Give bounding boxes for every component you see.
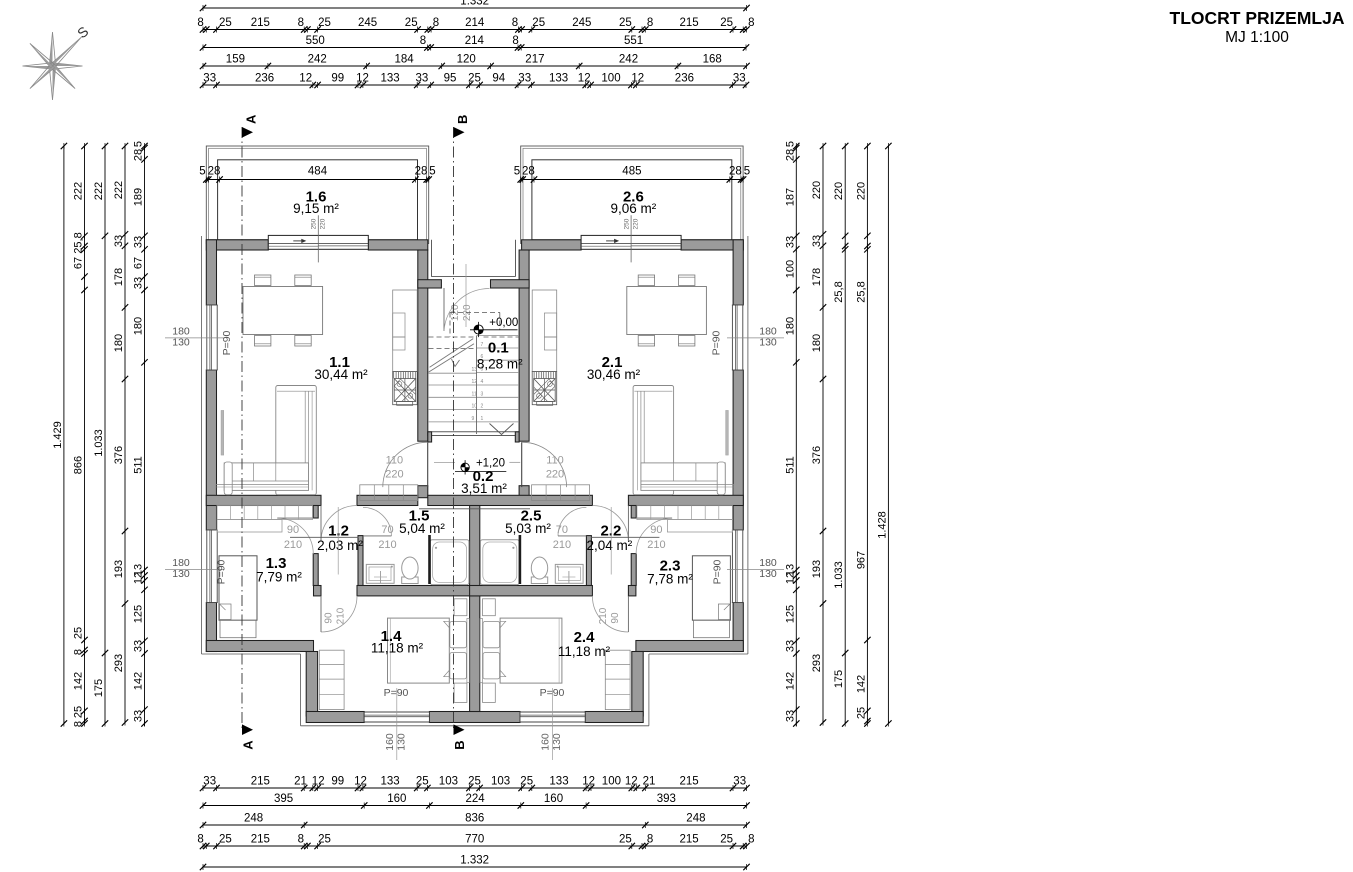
svg-text:P=90: P=90 [216, 559, 228, 584]
svg-text:25: 25 [720, 834, 733, 846]
svg-text:184: 184 [395, 54, 415, 66]
svg-text:210: 210 [553, 539, 571, 551]
svg-text:25,8: 25,8 [855, 281, 867, 302]
svg-text:70: 70 [381, 524, 393, 536]
svg-text:214: 214 [465, 35, 485, 47]
svg-text:99: 99 [331, 776, 344, 788]
svg-text:12: 12 [582, 776, 595, 788]
svg-text:100: 100 [784, 260, 796, 278]
svg-text:P=90: P=90 [710, 330, 722, 355]
svg-text:9,06 m²: 9,06 m² [611, 201, 657, 216]
svg-text:33: 33 [518, 73, 531, 85]
svg-text:160: 160 [384, 733, 396, 751]
svg-text:100: 100 [602, 776, 621, 788]
svg-text:210: 210 [336, 607, 347, 624]
svg-text:8: 8 [433, 17, 439, 29]
svg-text:8: 8 [197, 17, 203, 29]
svg-text:222: 222 [113, 181, 125, 199]
svg-text:1.429: 1.429 [52, 421, 64, 449]
svg-text:967: 967 [855, 551, 867, 569]
svg-text:175: 175 [93, 679, 105, 697]
svg-text:770: 770 [465, 834, 484, 846]
svg-text:33: 33 [203, 73, 216, 85]
svg-text:484: 484 [308, 166, 328, 178]
svg-text:293: 293 [811, 654, 823, 672]
svg-text:180: 180 [113, 334, 125, 352]
svg-text:33: 33 [416, 73, 429, 85]
svg-text:28: 28 [133, 149, 145, 161]
svg-text:12: 12 [631, 73, 644, 85]
svg-text:160: 160 [544, 793, 563, 805]
svg-text:25: 25 [318, 834, 331, 846]
svg-text:3,51 m²: 3,51 m² [461, 481, 507, 496]
svg-text:25: 25 [318, 17, 331, 29]
svg-text:2,04 m²: 2,04 m² [587, 538, 633, 553]
svg-text:7: 7 [481, 342, 484, 348]
svg-text:100: 100 [601, 73, 620, 85]
svg-text:25,8: 25,8 [73, 232, 85, 253]
svg-text:8: 8 [748, 834, 754, 846]
svg-text:95: 95 [444, 73, 457, 85]
svg-text:90: 90 [650, 524, 662, 536]
svg-text:2,03 m²: 2,03 m² [317, 538, 363, 553]
svg-text:2: 2 [481, 404, 484, 410]
svg-text:8: 8 [298, 834, 304, 846]
svg-text:33: 33 [133, 640, 145, 652]
svg-text:142: 142 [133, 672, 145, 690]
svg-text:180: 180 [784, 317, 796, 335]
svg-text:248: 248 [686, 813, 705, 825]
svg-text:8: 8 [512, 35, 518, 47]
svg-text:193: 193 [113, 560, 125, 578]
svg-text:67: 67 [133, 257, 145, 269]
svg-text:21: 21 [643, 776, 656, 788]
svg-text:103: 103 [439, 776, 458, 788]
svg-text:33: 33 [133, 710, 145, 722]
svg-text:10: 10 [472, 404, 478, 410]
svg-text:130: 130 [551, 733, 563, 751]
svg-text:25: 25 [855, 707, 867, 719]
svg-text:5: 5 [744, 166, 750, 178]
svg-text:33: 33 [133, 236, 145, 248]
svg-text:5: 5 [784, 141, 796, 147]
svg-text:8: 8 [647, 834, 653, 846]
svg-text:215: 215 [251, 776, 270, 788]
svg-text:103: 103 [491, 776, 510, 788]
svg-text:33: 33 [133, 277, 145, 289]
svg-text:12: 12 [299, 73, 312, 85]
svg-text:28: 28 [522, 166, 535, 178]
svg-text:511: 511 [133, 456, 145, 474]
svg-text:12: 12 [312, 776, 325, 788]
svg-text:TLOCRT PRIZEMLJA: TLOCRT PRIZEMLJA [1170, 8, 1345, 28]
svg-text:220: 220 [633, 218, 640, 229]
svg-text:12: 12 [356, 73, 369, 85]
svg-text:25: 25 [219, 17, 232, 29]
svg-text:210: 210 [598, 607, 609, 624]
svg-text:25: 25 [73, 627, 85, 639]
svg-text:25: 25 [219, 834, 232, 846]
svg-text:120: 120 [457, 54, 476, 66]
svg-text:8: 8 [420, 35, 426, 47]
svg-text:12: 12 [472, 379, 478, 385]
svg-text:8: 8 [197, 834, 203, 846]
svg-text:215: 215 [251, 834, 270, 846]
svg-text:125: 125 [784, 605, 796, 623]
svg-text:1.033: 1.033 [833, 561, 845, 589]
svg-text:376: 376 [811, 446, 823, 464]
svg-text:178: 178 [113, 268, 125, 286]
svg-text:99: 99 [331, 73, 344, 85]
svg-text:187: 187 [784, 188, 796, 206]
svg-text:248: 248 [244, 813, 263, 825]
svg-text:133: 133 [381, 73, 400, 85]
svg-text:293: 293 [113, 654, 125, 672]
svg-text:133: 133 [381, 776, 400, 788]
svg-text:1.428: 1.428 [876, 511, 888, 539]
svg-text:25: 25 [468, 73, 481, 85]
svg-text:245: 245 [358, 17, 377, 29]
svg-text:B: B [452, 740, 467, 749]
svg-text:33: 33 [733, 776, 746, 788]
svg-text:215: 215 [680, 17, 699, 29]
svg-text:168: 168 [703, 54, 722, 66]
svg-text:25: 25 [416, 776, 429, 788]
svg-text:175: 175 [833, 670, 845, 688]
svg-text:220: 220 [546, 469, 564, 481]
svg-text:90: 90 [610, 612, 621, 624]
svg-text:5: 5 [514, 166, 520, 178]
svg-text:0.1: 0.1 [488, 340, 509, 357]
svg-text:193: 193 [811, 560, 823, 578]
svg-text:8: 8 [298, 17, 304, 29]
svg-text:836: 836 [465, 813, 484, 825]
svg-text:11: 11 [472, 391, 477, 397]
svg-text:25: 25 [720, 17, 733, 29]
svg-text:222: 222 [93, 182, 105, 200]
svg-text:214: 214 [465, 17, 485, 29]
svg-text:5: 5 [199, 166, 205, 178]
svg-text:142: 142 [784, 672, 796, 690]
svg-text:159: 159 [226, 54, 245, 66]
svg-text:+0,00: +0,00 [489, 317, 518, 329]
svg-text:242: 242 [308, 54, 327, 66]
svg-text:25: 25 [532, 17, 545, 29]
svg-text:866: 866 [73, 456, 85, 474]
svg-text:90: 90 [324, 612, 335, 624]
svg-text:551: 551 [624, 35, 643, 47]
svg-text:25: 25 [73, 706, 85, 718]
svg-text:215: 215 [680, 776, 699, 788]
svg-text:8: 8 [647, 17, 653, 29]
svg-text:485: 485 [622, 166, 641, 178]
svg-text:8,28 m²: 8,28 m² [477, 357, 523, 372]
svg-text:511: 511 [784, 456, 796, 474]
svg-text:A: A [244, 114, 259, 124]
svg-text:30,46 m²: 30,46 m² [587, 367, 641, 382]
svg-text:30,44 m²: 30,44 m² [314, 367, 368, 382]
svg-text:1.033: 1.033 [93, 429, 105, 457]
svg-text:1.332: 1.332 [460, 855, 489, 867]
svg-text:180: 180 [811, 334, 823, 352]
svg-text:189: 189 [133, 188, 145, 206]
svg-text:33: 33 [113, 235, 125, 247]
svg-text:28: 28 [415, 166, 428, 178]
svg-text:9,15 m²: 9,15 m² [293, 201, 339, 216]
svg-text:25: 25 [405, 17, 418, 29]
svg-text:3: 3 [481, 391, 484, 397]
svg-text:8: 8 [73, 721, 85, 727]
svg-text:9: 9 [472, 416, 475, 422]
svg-text:215: 215 [251, 17, 270, 29]
svg-text:250: 250 [624, 218, 631, 229]
svg-text:220: 220 [385, 469, 403, 481]
svg-text:5: 5 [133, 141, 145, 147]
svg-text:217: 217 [525, 54, 544, 66]
svg-text:393: 393 [657, 793, 676, 805]
svg-text:A: A [241, 740, 256, 750]
svg-text:550: 550 [306, 35, 325, 47]
svg-text:94: 94 [492, 73, 505, 85]
svg-text:12: 12 [625, 776, 638, 788]
svg-text:33: 33 [784, 236, 796, 248]
svg-text:28: 28 [729, 166, 742, 178]
svg-text:110: 110 [546, 455, 564, 467]
svg-text:67: 67 [73, 257, 85, 269]
svg-text:33: 33 [784, 710, 796, 722]
svg-text:25,8: 25,8 [833, 281, 845, 302]
svg-text:25: 25 [468, 776, 481, 788]
svg-text:P=90: P=90 [712, 559, 724, 584]
svg-text:P=90: P=90 [384, 687, 409, 699]
svg-text:33: 33 [784, 640, 796, 652]
svg-text:33: 33 [733, 73, 746, 85]
svg-text:180: 180 [133, 317, 145, 335]
svg-text:224: 224 [466, 793, 486, 805]
svg-text:28: 28 [208, 166, 221, 178]
svg-text:1.332: 1.332 [460, 0, 489, 8]
svg-text:1: 1 [481, 416, 484, 422]
svg-text:5,03 m²: 5,03 m² [505, 521, 551, 536]
svg-text:220: 220 [320, 218, 327, 229]
svg-text:MJ 1:100: MJ 1:100 [1225, 29, 1289, 46]
svg-text:110: 110 [386, 455, 404, 467]
svg-text:7,79 m²: 7,79 m² [256, 569, 302, 584]
svg-text:242: 242 [619, 54, 638, 66]
svg-text:8: 8 [512, 17, 518, 29]
svg-text:220: 220 [855, 182, 867, 200]
svg-text:28: 28 [784, 149, 796, 161]
svg-text:11,18 m²: 11,18 m² [371, 640, 424, 655]
svg-text:220: 220 [811, 181, 823, 199]
svg-text:70: 70 [556, 524, 568, 536]
svg-text:160: 160 [387, 793, 406, 805]
svg-text:21: 21 [294, 776, 307, 788]
svg-text:8: 8 [73, 649, 85, 655]
svg-text:236: 236 [255, 73, 274, 85]
svg-text:8: 8 [748, 17, 754, 29]
svg-text:210: 210 [284, 539, 302, 551]
svg-text:376: 376 [113, 446, 125, 464]
svg-text:395: 395 [274, 793, 293, 805]
svg-text:12: 12 [354, 776, 367, 788]
svg-text:12: 12 [578, 73, 591, 85]
svg-text:B: B [455, 115, 470, 124]
svg-text:210: 210 [378, 539, 396, 551]
svg-text:222: 222 [73, 182, 85, 200]
svg-text:5,04 m²: 5,04 m² [399, 521, 445, 536]
svg-text:12: 12 [133, 572, 145, 584]
svg-text:142: 142 [855, 675, 867, 693]
svg-text:11,18 m²: 11,18 m² [558, 644, 611, 659]
svg-text:210: 210 [647, 539, 665, 551]
svg-text:142: 142 [73, 672, 85, 690]
svg-text:25: 25 [520, 776, 533, 788]
svg-text:236: 236 [675, 73, 694, 85]
svg-text:215: 215 [680, 834, 699, 846]
svg-text:12: 12 [784, 572, 796, 584]
svg-text:5: 5 [429, 166, 435, 178]
svg-text:130: 130 [395, 733, 407, 751]
svg-text:220: 220 [833, 182, 845, 200]
svg-text:4: 4 [481, 379, 484, 385]
svg-text:25: 25 [619, 17, 632, 29]
svg-text:P=90: P=90 [221, 330, 233, 355]
svg-text:160: 160 [540, 733, 552, 751]
svg-text:125: 125 [133, 605, 145, 623]
svg-text:245: 245 [572, 17, 591, 29]
svg-text:250: 250 [311, 218, 318, 229]
svg-text:33: 33 [203, 776, 216, 788]
svg-text:25: 25 [619, 834, 632, 846]
svg-text:178: 178 [811, 268, 823, 286]
svg-text:90: 90 [287, 524, 299, 536]
svg-text:133: 133 [549, 776, 568, 788]
svg-text:33: 33 [811, 235, 823, 247]
svg-text:133: 133 [549, 73, 568, 85]
svg-text:7,78 m²: 7,78 m² [647, 572, 693, 587]
svg-text:P=90: P=90 [540, 687, 565, 699]
